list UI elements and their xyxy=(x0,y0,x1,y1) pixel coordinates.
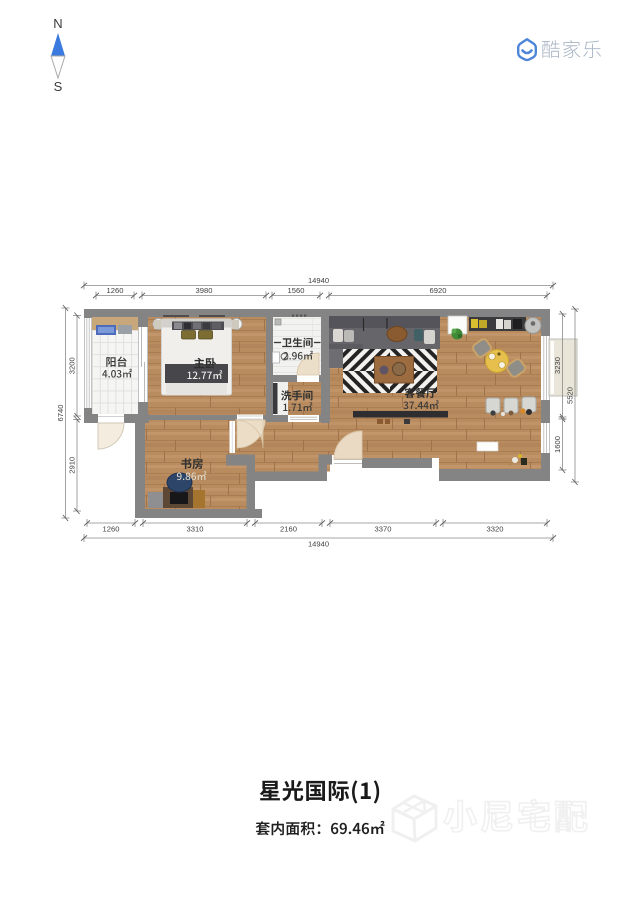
svg-text:1560: 1560 xyxy=(288,286,305,295)
svg-text:3370: 3370 xyxy=(375,525,392,534)
svg-text:2910: 2910 xyxy=(68,457,77,474)
svg-text:1260: 1260 xyxy=(107,286,124,295)
svg-text:3200: 3200 xyxy=(68,357,77,374)
svg-text:S: S xyxy=(54,79,63,94)
svg-text:2160: 2160 xyxy=(280,525,297,534)
svg-text:5520: 5520 xyxy=(566,387,575,404)
svg-text:6920: 6920 xyxy=(430,286,447,295)
svg-text:1600: 1600 xyxy=(553,436,562,453)
svg-text:6740: 6740 xyxy=(56,405,65,422)
svg-text:14940: 14940 xyxy=(308,276,329,285)
svg-text:3310: 3310 xyxy=(187,525,204,534)
svg-text:3230: 3230 xyxy=(553,357,562,374)
svg-text:1260: 1260 xyxy=(103,525,120,534)
svg-text:N: N xyxy=(53,16,62,31)
svg-text:3320: 3320 xyxy=(487,525,504,534)
svg-text:14940: 14940 xyxy=(308,540,329,549)
svg-text:3980: 3980 xyxy=(196,286,213,295)
